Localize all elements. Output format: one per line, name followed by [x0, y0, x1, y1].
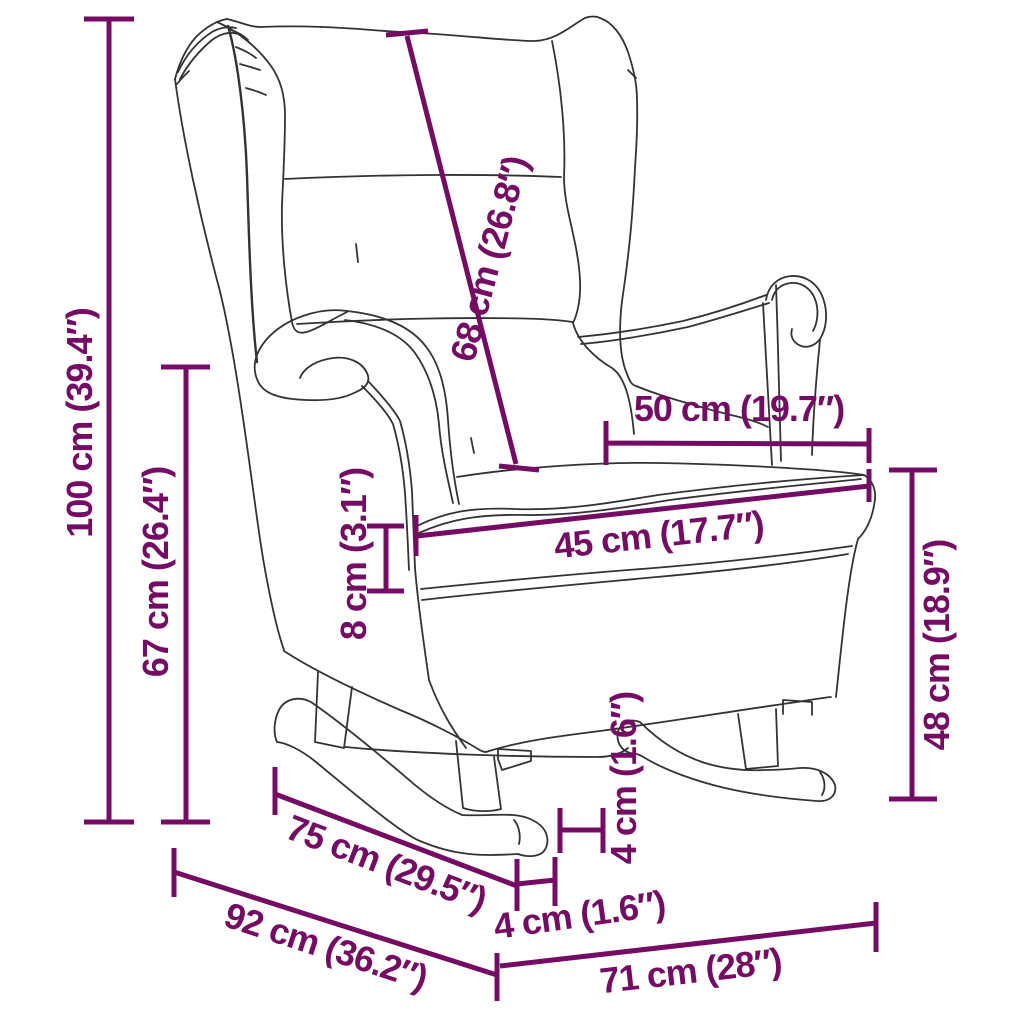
- svg-text:8 cm (3.1″): 8 cm (3.1″): [333, 468, 374, 640]
- svg-text:100 cm (39.4″): 100 cm (39.4″): [59, 308, 100, 537]
- svg-text:4 cm (1.6″): 4 cm (1.6″): [603, 692, 644, 864]
- svg-text:67 cm (26.4″): 67 cm (26.4″): [135, 467, 176, 677]
- svg-text:48 cm (18.9″): 48 cm (18.9″): [916, 540, 957, 750]
- svg-text:50 cm (19.7″): 50 cm (19.7″): [634, 388, 844, 429]
- svg-text:71 cm (28″): 71 cm (28″): [598, 940, 784, 1001]
- svg-text:68 cm (26.8″): 68 cm (26.8″): [442, 152, 536, 366]
